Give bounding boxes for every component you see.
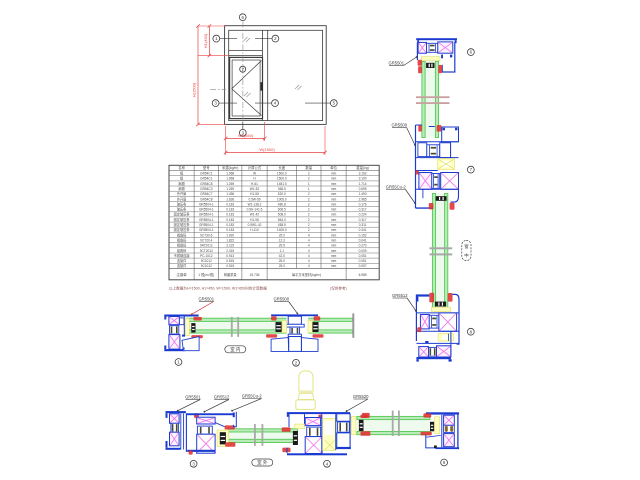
svg-text:外开扇: 外开扇	[177, 191, 187, 196]
svg-text:1005.0: 1005.0	[277, 197, 287, 201]
svg-text:0.152: 0.152	[359, 233, 367, 237]
svg-text:9CT20.4: 9CT20.4	[200, 239, 212, 243]
svg-text:mm: mm	[331, 259, 337, 263]
svg-text:25.0: 25.0	[279, 264, 285, 268]
svg-text:GR54C8: GR54C8	[200, 197, 213, 201]
svg-text:1: 1	[308, 182, 310, 186]
svg-text:W1-52: W1-52	[250, 187, 260, 191]
svg-text:15.736: 15.736	[250, 273, 260, 277]
svg-text:GR5504-1: GR5504-1	[199, 218, 214, 222]
svg-text:1451.0: 1451.0	[277, 182, 287, 186]
svg-text:mm: mm	[331, 233, 337, 237]
svg-text:H(1500): H(1500)	[192, 82, 197, 97]
svg-text:1.269: 1.269	[226, 187, 234, 191]
svg-text:2: 2	[308, 208, 310, 212]
svg-text:2: 2	[308, 213, 310, 217]
svg-text:mm: mm	[331, 264, 337, 268]
svg-text:0.270: 0.270	[359, 244, 367, 248]
svg-text:2: 2	[308, 228, 310, 232]
svg-text:长度: 长度	[278, 165, 285, 170]
svg-text:1.822: 1.822	[226, 239, 234, 243]
svg-text:外开扇: 外开扇	[177, 196, 187, 201]
svg-text:29.5: 29.5	[279, 244, 285, 248]
svg-text:mm: mm	[331, 213, 337, 217]
svg-text:mm: mm	[331, 254, 337, 258]
svg-text:H1-55: H1-55	[250, 192, 259, 196]
svg-text:扇梃: 扇梃	[178, 186, 185, 191]
svg-text:4: 4	[308, 264, 310, 268]
svg-text:4: 4	[308, 239, 310, 243]
svg-text:W1-42: W1-42	[250, 213, 260, 217]
svg-text:GR54C3: GR54C3	[200, 187, 213, 191]
svg-text:固定玻压条: 固定玻压条	[174, 222, 191, 227]
svg-text:0.317: 0.317	[359, 208, 367, 212]
svg-text:H1-96: H1-96	[250, 218, 259, 222]
svg-text:GR5501: GR5501	[388, 61, 404, 66]
svg-text:0.176: 0.176	[359, 202, 367, 206]
svg-text:GR5512: GR5512	[214, 395, 230, 400]
svg-text:连接件: 连接件	[177, 263, 187, 268]
svg-text:GR5504-1: GR5504-1	[199, 223, 214, 227]
svg-text:0.317: 0.317	[359, 218, 367, 222]
svg-text:室 外: 室 外	[257, 459, 268, 466]
svg-text:9C1012: 9C1012	[201, 264, 212, 268]
svg-text:606.5: 606.5	[278, 208, 286, 212]
svg-text:0.183: 0.183	[226, 218, 234, 222]
svg-text:25.0: 25.0	[279, 259, 285, 263]
svg-text:mm: mm	[331, 249, 337, 253]
svg-text:0.041: 0.041	[359, 239, 367, 243]
svg-text:GR5501: GR5501	[198, 297, 214, 302]
svg-text:0.183: 0.183	[226, 213, 234, 217]
svg-text:9CT30.6: 9CT30.6	[200, 233, 212, 237]
svg-text:25.0: 25.0	[279, 233, 285, 237]
svg-text:GR5500: GR5500	[273, 297, 289, 302]
svg-text:1500.0: 1500.0	[277, 177, 287, 181]
svg-text:(仅供参考): (仅供参考)	[330, 286, 347, 291]
svg-text:GR5504-1: GR5504-1	[199, 202, 214, 206]
svg-text:计算公式: 计算公式	[248, 165, 262, 170]
svg-text:520.0: 520.0	[278, 192, 286, 196]
svg-text:GR55Cu-2: GR55Cu-2	[386, 185, 407, 190]
svg-text:mm: mm	[331, 218, 337, 222]
svg-text:mm: mm	[331, 239, 337, 243]
svg-text:mm: mm	[331, 223, 337, 227]
svg-text:组角码: 组角码	[177, 238, 187, 243]
svg-text:GR54C8: GR54C8	[200, 182, 213, 186]
svg-text:458.5: 458.5	[278, 223, 286, 227]
svg-text:0.311: 0.311	[359, 223, 367, 227]
svg-text:GR54C1: GR54C1	[200, 177, 213, 181]
svg-text:GR5504-1: GR5504-1	[199, 208, 214, 212]
svg-text:mm: mm	[331, 172, 337, 176]
svg-text:玻压条: 玻压条	[177, 201, 187, 206]
svg-text:扇梃: 扇梃	[178, 181, 185, 186]
svg-text:GR54C7: GR54C7	[200, 192, 213, 196]
svg-text:2: 2	[308, 172, 310, 176]
svg-text:2: 2	[308, 218, 310, 222]
svg-text:固定玻压条: 固定玻压条	[174, 227, 191, 232]
svg-text:不锈钢连接: 不锈钢连接	[174, 253, 191, 258]
svg-text:GR5504-1: GR5504-1	[199, 228, 214, 232]
svg-text:0.341: 0.341	[359, 228, 367, 232]
svg-text:9AT2012: 9AT2012	[200, 244, 213, 248]
svg-text:0.515: 0.515	[226, 259, 234, 263]
svg-text:2: 2	[308, 177, 310, 181]
svg-text:1.1: 1.1	[280, 249, 285, 253]
svg-text:4: 4	[308, 249, 310, 253]
svg-text:组角码: 组角码	[177, 232, 187, 237]
svg-text:0.051: 0.051	[359, 259, 367, 263]
svg-text:H-110: H-110	[250, 228, 259, 232]
svg-text:0.009: 0.009	[359, 249, 367, 253]
svg-text:1 樘(m²/樘): 1 樘(m²/樘)	[198, 272, 214, 277]
svg-text:H-61: H-61	[251, 182, 258, 186]
svg-text:508.0: 508.0	[278, 213, 286, 217]
svg-text:2.115: 2.115	[226, 244, 234, 248]
svg-text:mm: mm	[331, 202, 337, 206]
svg-text:2: 2	[308, 223, 310, 227]
svg-text:GR5504-1: GR5504-1	[199, 213, 214, 217]
svg-text:9CT2012: 9CT2012	[200, 249, 213, 253]
svg-text:mm: mm	[331, 197, 337, 201]
svg-text:564.0: 564.0	[278, 218, 286, 222]
svg-text:重量(kg): 重量(kg)	[356, 165, 369, 170]
svg-text:4: 4	[308, 254, 310, 258]
svg-text:1.269: 1.269	[226, 182, 234, 186]
svg-text:1405.0: 1405.0	[277, 228, 287, 232]
svg-text:W1-138.2: W1-138.2	[248, 202, 262, 206]
svg-text:0.5W1-42: 0.5W1-42	[248, 223, 262, 227]
svg-text:3.192: 3.192	[359, 172, 367, 176]
svg-text:数量: 数量	[305, 165, 312, 170]
svg-text:GR5500: GR5500	[391, 123, 407, 128]
svg-text:研磨重量: 研磨重量	[224, 272, 238, 277]
svg-text:1.496: 1.496	[226, 192, 234, 196]
svg-text:注窗单: 注窗单	[177, 272, 188, 277]
svg-text:2: 2	[308, 202, 310, 206]
svg-text:42.0: 42.0	[279, 254, 285, 258]
svg-text:0.5H-141.5: 0.5H-141.5	[247, 208, 263, 212]
svg-text:0.183: 0.183	[226, 208, 234, 212]
svg-text:12.3: 12.3	[279, 239, 285, 243]
svg-text:0.515: 0.515	[226, 264, 234, 268]
svg-text:型号: 型号	[203, 165, 210, 170]
svg-text:0.051: 0.051	[359, 254, 367, 258]
svg-text:1.714: 1.714	[359, 182, 367, 186]
svg-text:480.8: 480.8	[278, 202, 286, 206]
svg-text:GR54C1: GR54C1	[200, 172, 213, 176]
svg-text:中: 中	[464, 252, 468, 259]
svg-text:固定玻压条: 固定玻压条	[174, 212, 191, 217]
svg-text:0.183: 0.183	[226, 223, 234, 227]
svg-text:mm: mm	[331, 177, 337, 181]
svg-text:1.920: 1.920	[226, 233, 234, 237]
svg-text:单位: 单位	[330, 165, 337, 170]
svg-text:mm: mm	[331, 228, 337, 232]
svg-text:PC-1012: PC-1012	[200, 254, 213, 258]
svg-text:4: 4	[308, 259, 310, 263]
svg-text:连接件: 连接件	[177, 258, 187, 263]
svg-text:室 内: 室 内	[230, 346, 241, 353]
svg-text:1.968: 1.968	[226, 177, 234, 181]
svg-text:W: W	[253, 172, 256, 176]
svg-text:W1(650): W1(650)	[238, 133, 254, 138]
svg-text:1500.0: 1500.0	[277, 172, 287, 176]
svg-text:窗: 窗	[464, 243, 469, 250]
svg-text:名称: 名称	[178, 165, 185, 170]
svg-text:米重(kg/m): 米重(kg/m)	[222, 165, 238, 170]
svg-text:mm: mm	[331, 244, 337, 248]
svg-text:4: 4	[308, 233, 310, 237]
svg-text:2: 2	[308, 192, 310, 196]
svg-text:mm: mm	[331, 187, 337, 191]
svg-text:0.913: 0.913	[226, 254, 234, 258]
svg-text:0.057: 0.057	[359, 264, 367, 268]
svg-text:1: 1	[308, 187, 310, 191]
svg-text:6.985: 6.985	[359, 273, 367, 277]
svg-text:固定玻压条: 固定玻压条	[174, 217, 191, 222]
svg-text:2.985: 2.985	[359, 197, 367, 201]
svg-text:GR5512: GR5512	[392, 293, 408, 298]
svg-text:1.636: 1.636	[226, 197, 234, 201]
svg-text:W(1500): W(1500)	[259, 147, 275, 152]
svg-text:mm: mm	[331, 182, 337, 186]
svg-text:mm: mm	[331, 192, 337, 196]
svg-text:0.695: 0.695	[359, 187, 367, 191]
svg-text:0.183: 0.183	[226, 228, 234, 232]
svg-text:3.190: 3.190	[359, 177, 367, 181]
svg-text:1.968: 1.968	[226, 172, 234, 176]
svg-text:GR5520: GR5520	[353, 394, 369, 399]
svg-text:H1(450): H1(450)	[203, 33, 208, 48]
svg-text:368.5: 368.5	[278, 187, 286, 191]
svg-text:1.490: 1.490	[359, 192, 367, 196]
svg-text:2: 2	[308, 197, 310, 201]
svg-text:玻压条: 玻压条	[177, 207, 187, 212]
svg-text:2.315: 2.315	[226, 249, 234, 253]
svg-text:以上数据为H=1500, H1=450, W=1500, W: 以上数据为H=1500, H1=450, W=1500, W1=650时的计算数…	[169, 286, 267, 291]
svg-text:0.183: 0.183	[226, 202, 234, 206]
svg-text:组角码: 组角码	[177, 248, 187, 253]
svg-text:mm: mm	[331, 208, 337, 212]
svg-text:4: 4	[308, 244, 310, 248]
svg-text:每平方米型材(kg/m²): 每平方米型材(kg/m²)	[292, 272, 321, 277]
svg-text:GR55Cu-2: GR55Cu-2	[242, 394, 263, 399]
svg-text:0.224: 0.224	[359, 213, 367, 217]
svg-text:0.5W-59: 0.5W-59	[249, 197, 261, 201]
svg-text:GR5501: GR5501	[185, 395, 201, 400]
svg-text:组角码: 组角码	[177, 243, 187, 248]
svg-text:9C1012: 9C1012	[201, 259, 212, 263]
